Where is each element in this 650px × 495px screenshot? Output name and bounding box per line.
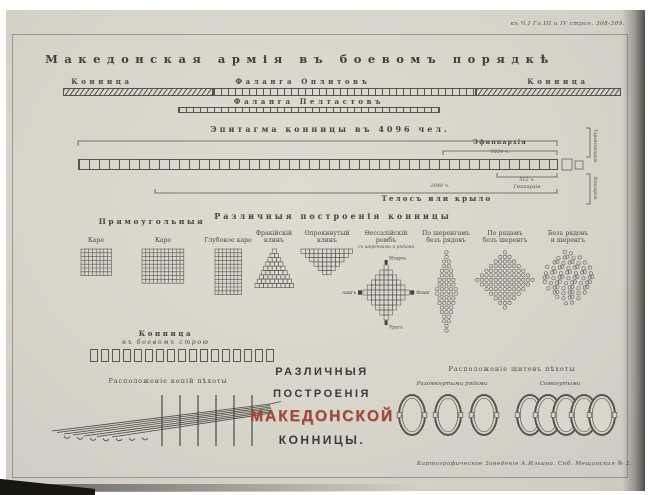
cavalry-squadron-box — [200, 349, 208, 362]
scan-shadow-right — [622, 10, 645, 491]
cavalry-squadron-box — [134, 349, 142, 362]
main-title-line3: МАКЕДОНСКОЙ — [250, 408, 394, 426]
formations-heading: Различныя построенія конницы — [214, 211, 452, 221]
cavalry-line-row — [90, 349, 274, 362]
main-title-line4: КОННИЦЫ. — [279, 433, 365, 447]
shield-figure-closed — [514, 392, 618, 438]
shields-open-label: Разомкнутыми рядами — [417, 381, 488, 387]
cavalry-squadron-box — [90, 349, 98, 362]
label-telos: Телосъ или крыло — [382, 194, 493, 203]
shields-open-group — [396, 392, 500, 442]
cavalry-squadron-box — [222, 349, 230, 362]
cavalry-squadron-box — [189, 349, 197, 362]
formation-figure — [80, 248, 112, 277]
cavalry-squadron-box — [112, 349, 120, 362]
epitagma-strip — [78, 159, 558, 170]
cavalry-squadron-box — [145, 349, 153, 362]
cavalry-squadron-box — [211, 349, 219, 362]
shield-figure-open — [396, 392, 500, 438]
formation-label: Безъ рядовъ и шеренгъ — [524, 224, 612, 245]
label-ephipparchia: Эфиппархія — [473, 139, 527, 146]
formation-figure — [432, 248, 461, 335]
cavalry-squadron-box — [101, 349, 109, 362]
svg-text:Флангъ: Флангъ — [342, 291, 356, 296]
hipparchia-count: 512 ч. — [519, 177, 535, 183]
cavalry-squadron-box — [178, 349, 186, 362]
main-title-line1: РАЗЛИЧНЫЯ — [275, 366, 368, 378]
ephipparchia-count: 1024 ч. — [490, 149, 509, 155]
cavalry-squadron-box — [156, 349, 164, 362]
formation-figure — [141, 248, 185, 284]
formation-item: Безъ рядовъ и шеренгъ — [524, 224, 612, 307]
shields-closed-label: Сомкнутыми — [540, 381, 581, 387]
cavalry-squadron-box — [123, 349, 131, 362]
cavalry-line-subtitle: въ боевомъ строю — [122, 339, 209, 346]
label-hipparchia: Гиппархія — [513, 184, 540, 190]
cavalry-squadron-box — [233, 349, 241, 362]
pikes-title: Расположеніе копій пѣхоты — [108, 377, 227, 385]
cavalry-squadron-box — [167, 349, 175, 362]
imprint: Картографическое Заведеніе А.Ильина. Спб… — [320, 461, 632, 467]
pikes-figure — [50, 388, 284, 452]
formation-figure — [538, 248, 599, 307]
shields-title: Расположеніе щитовъ пѣхоты — [449, 365, 576, 373]
label-tarantinarchia: Тарантинархія — [592, 129, 597, 163]
main-title-line2: ПОСТРОЕНІЯ — [273, 388, 371, 400]
label-epilarchia: Эпилархія — [592, 176, 597, 200]
cavalry-squadron-box — [244, 349, 252, 362]
shields-closed-group — [514, 392, 618, 442]
telos-count: 2048 ч. — [430, 183, 449, 189]
cavalry-line-title: Конница — [139, 329, 193, 338]
cavalry-squadron-box — [266, 349, 274, 362]
cavalry-squadron-box — [255, 349, 263, 362]
svg-text:Урагъ: Урагъ — [389, 326, 403, 331]
